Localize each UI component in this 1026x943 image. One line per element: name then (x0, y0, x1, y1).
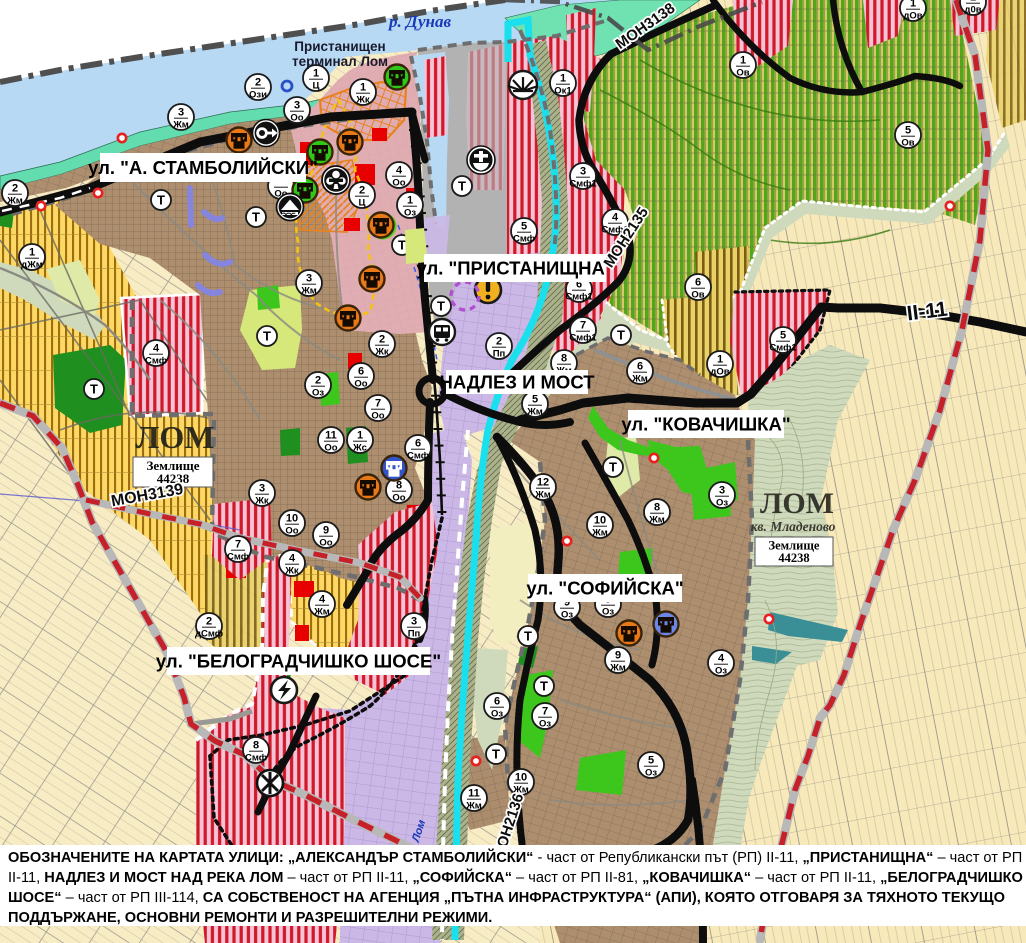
svg-text:ул. "ПРИСТАНИЩНА": ул. "ПРИСТАНИЩНА" (416, 258, 613, 279)
svg-text:6: 6 (494, 696, 500, 708)
svg-text:4: 4 (612, 212, 619, 224)
svg-text:Жм: Жм (631, 374, 648, 385)
svg-text:8: 8 (654, 502, 660, 514)
svg-text:1: 1 (313, 68, 319, 80)
svg-text:2: 2 (496, 336, 502, 348)
svg-text:10: 10 (594, 515, 606, 527)
svg-text:6: 6 (358, 366, 364, 378)
svg-text:10: 10 (286, 513, 298, 525)
svg-text:ул. "КОВАЧИШКА": ул. "КОВАЧИШКА" (621, 414, 790, 435)
svg-text:Смф: Смф (245, 753, 267, 764)
svg-text:кв. Младеново: кв. Младеново (751, 519, 836, 534)
svg-text:Ц: Ц (313, 81, 320, 92)
svg-text:1: 1 (357, 430, 363, 442)
svg-text:Оз: Оз (491, 709, 503, 720)
svg-text:4: 4 (396, 165, 403, 177)
svg-text:Смф: Смф (407, 451, 429, 462)
svg-text:ЛОМ: ЛОМ (760, 487, 834, 520)
svg-text:Жм: Жм (313, 607, 330, 618)
svg-text:дЖм: дЖм (21, 260, 43, 271)
svg-text:2: 2 (255, 77, 261, 89)
svg-text:11: 11 (325, 430, 337, 442)
svg-text:3: 3 (719, 485, 725, 497)
svg-text:Жм: Жм (534, 490, 551, 501)
svg-text:ШОСЕ“ – част от РП III-114, СА: ШОСЕ“ – част от РП III-114, СА СОБСТВЕНО… (8, 890, 1005, 906)
svg-text:3: 3 (306, 273, 312, 285)
svg-text:1: 1 (407, 195, 413, 207)
svg-text:Т: Т (492, 747, 500, 762)
svg-text:7: 7 (235, 539, 241, 551)
svg-text:2: 2 (206, 616, 212, 628)
svg-text:5: 5 (532, 394, 538, 406)
svg-text:дОв: дОв (710, 367, 729, 378)
svg-text:Ози: Ози (249, 90, 267, 101)
svg-text:Оз: Оз (645, 768, 657, 779)
svg-text:Жм: Жм (6, 196, 23, 207)
svg-text:Пристанищен: Пристанищен (294, 39, 385, 54)
svg-text:Т: Т (90, 382, 98, 397)
svg-text:9: 9 (323, 525, 329, 537)
svg-text:Жс: Жс (352, 443, 367, 454)
svg-text:Т: Т (458, 179, 466, 194)
svg-text:ПОДДЪРЖАНЕ, ОСНОВНИ РЕМОНТИ И: ПОДДЪРЖАНЕ, ОСНОВНИ РЕМОНТИ И РАЗРЕШИТЕЛ… (8, 910, 492, 926)
svg-text:Жм: Жм (648, 515, 665, 526)
svg-text:Оо: Оо (324, 443, 337, 454)
svg-text:2: 2 (379, 334, 385, 346)
svg-text:Жм: Жм (526, 407, 543, 418)
svg-text:1: 1 (560, 73, 566, 85)
svg-text:1: 1 (910, 0, 916, 10)
svg-text:дОв: дОв (903, 11, 922, 22)
svg-text:Смф: Смф (227, 552, 249, 563)
svg-text:Оз: Оз (539, 719, 551, 730)
svg-text:Оз: Оз (715, 666, 727, 677)
svg-text:Оо: Оо (290, 113, 303, 124)
svg-text:д0в: д0в (964, 5, 981, 16)
svg-text:Пп: Пп (493, 349, 506, 360)
svg-text:4: 4 (289, 553, 296, 565)
svg-text:Жм: Жм (300, 286, 317, 297)
svg-text:Т: Т (398, 238, 406, 253)
svg-text:1: 1 (740, 55, 746, 67)
svg-text:Ов: Ов (736, 68, 749, 79)
svg-text:Жм: Жм (609, 663, 626, 674)
svg-text:2: 2 (315, 375, 321, 387)
svg-text:НАДЛЕЗ И МОСТ: НАДЛЕЗ И МОСТ (439, 372, 595, 393)
svg-text:дСмф: дСмф (195, 629, 223, 640)
svg-text:Ц: Ц (359, 198, 366, 209)
svg-text:Т: Т (157, 193, 165, 208)
svg-text:Смф1: Смф1 (569, 179, 597, 190)
svg-text:р. Дунав: р. Дунав (387, 12, 452, 31)
svg-text:Пп: Пп (408, 629, 421, 640)
svg-text:Оз: Оз (602, 607, 614, 618)
svg-text:44238: 44238 (778, 551, 809, 565)
svg-text:9: 9 (615, 650, 621, 662)
svg-text:Оо: Оо (354, 379, 367, 390)
svg-text:Смф: Смф (513, 234, 535, 245)
svg-text:Жм: Жм (465, 801, 482, 812)
svg-text:11: 11 (468, 788, 480, 800)
svg-text:6: 6 (695, 277, 701, 289)
svg-text:8: 8 (253, 740, 259, 752)
svg-text:Смф1: Смф1 (569, 333, 597, 344)
svg-text:5: 5 (521, 221, 527, 233)
svg-text:1: 1 (360, 82, 366, 94)
svg-text:Оз: Оз (716, 498, 728, 509)
svg-text:3: 3 (294, 100, 300, 112)
svg-text:7: 7 (542, 706, 548, 718)
svg-text:7: 7 (580, 320, 586, 332)
svg-text:ул. "БЕЛОГРАДЧИШКО ШОСЕ": ул. "БЕЛОГРАДЧИШКО ШОСЕ" (156, 651, 441, 672)
svg-text:3: 3 (580, 166, 586, 178)
svg-text:10: 10 (515, 772, 527, 784)
svg-text:Т: Т (540, 679, 548, 694)
svg-text:II-11, НАДЛЕЗ И МОСТ НАД РЕКА: II-11, НАДЛЕЗ И МОСТ НАД РЕКА ЛОМ – част… (8, 868, 1023, 886)
svg-text:Оо: Оо (392, 178, 405, 189)
svg-text:1: 1 (970, 0, 976, 4)
svg-text:Жк: Жк (254, 496, 269, 507)
svg-text:6: 6 (415, 438, 421, 450)
svg-text:8: 8 (561, 353, 567, 365)
svg-text:ЛОМ: ЛОМ (136, 419, 215, 455)
svg-text:Жм: Жм (591, 528, 608, 539)
svg-text:Смф1: Смф1 (565, 292, 593, 303)
svg-text:7: 7 (375, 398, 381, 410)
svg-text:Ов: Ов (901, 138, 914, 149)
svg-text:3: 3 (259, 483, 265, 495)
svg-text:5: 5 (780, 330, 786, 342)
svg-text:4: 4 (153, 343, 160, 355)
svg-text:3: 3 (411, 616, 417, 628)
svg-text:12: 12 (537, 477, 549, 489)
svg-text:Т: Т (252, 210, 260, 225)
svg-text:Т: Т (617, 328, 625, 343)
svg-text:Жк: Жк (355, 95, 370, 106)
svg-text:Оо: Оо (319, 538, 332, 549)
svg-text:5: 5 (905, 125, 911, 137)
svg-text:ул. "А. СТАМБОЛИЙСКИ": ул. "А. СТАМБОЛИЙСКИ" (88, 157, 318, 178)
svg-text:4: 4 (319, 594, 326, 606)
svg-text:5: 5 (648, 755, 654, 767)
svg-text:Оз: Оз (561, 610, 573, 621)
svg-text:Т: Т (524, 629, 532, 644)
svg-text:Оз: Оз (312, 388, 324, 399)
svg-text:Смф1: Смф1 (769, 343, 797, 354)
svg-text:Оо: Оо (392, 493, 405, 504)
svg-text:Т: Т (263, 329, 271, 344)
svg-text:терминал Лом: терминал Лом (292, 54, 388, 69)
svg-text:Ов: Ов (691, 290, 704, 301)
svg-text:Смф: Смф (145, 356, 167, 367)
svg-text:1: 1 (29, 247, 35, 259)
svg-text:ул. "СОФИЙСКА": ул. "СОФИЙСКА" (526, 578, 683, 599)
svg-text:Т: Т (437, 299, 445, 314)
svg-text:2: 2 (359, 185, 365, 197)
svg-text:3: 3 (178, 107, 184, 119)
svg-text:ОБОЗНАЧЕНИТЕ НА КАРТАТА УЛИЦИ:: ОБОЗНАЧЕНИТЕ НА КАРТАТА УЛИЦИ: „АЛЕКСАНД… (8, 848, 1022, 866)
svg-text:1: 1 (717, 354, 723, 366)
svg-text:Оо: Оо (371, 411, 384, 422)
svg-text:4: 4 (718, 653, 725, 665)
svg-text:6: 6 (637, 361, 643, 373)
svg-text:Оо: Оо (285, 526, 298, 537)
svg-text:Оз: Оз (404, 208, 416, 219)
svg-text:Жк: Жк (284, 566, 299, 577)
svg-text:Жм: Жм (172, 120, 189, 131)
svg-text:Т: Т (609, 460, 617, 475)
svg-text:2: 2 (12, 183, 18, 195)
svg-text:Ок1: Ок1 (554, 86, 572, 97)
svg-text:Жк: Жк (374, 347, 389, 358)
